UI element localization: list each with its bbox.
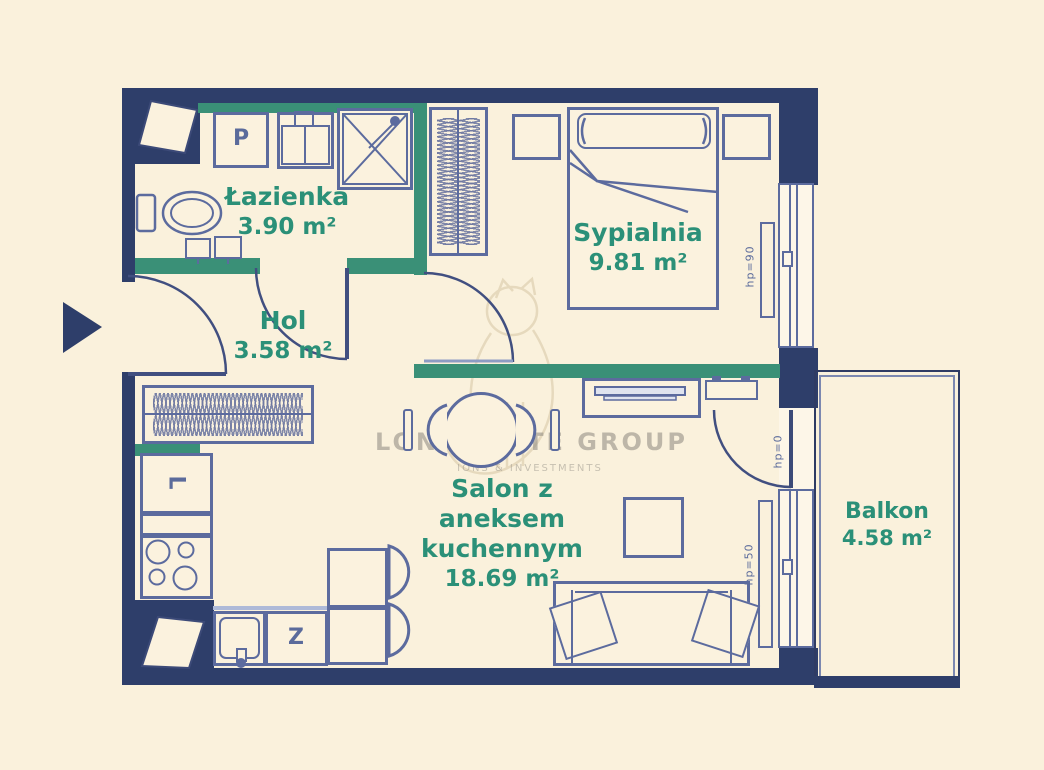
kitchen-table-lower: [327, 607, 388, 665]
bathroom-wall-bottom-left: [135, 258, 260, 274]
living-name-line2: aneksem: [392, 504, 612, 534]
hall-wardrobe: [142, 385, 314, 444]
counter-edge: [213, 606, 327, 610]
balcony-name: Balkon: [816, 498, 958, 525]
wall-bottom: [122, 668, 818, 685]
balcony-bottom-edge: [814, 676, 960, 688]
tv-cabinet: [582, 378, 701, 418]
room-label-hall: Hol 3.58 m²: [203, 306, 363, 366]
bedroom-area: 9.81 m²: [528, 248, 748, 278]
wall-right-middle: [779, 348, 818, 408]
kitchen-table-upper: [327, 548, 388, 608]
bedroom-door: [424, 273, 513, 362]
room-label-balcony: Balkon 4.58 m²: [816, 498, 958, 552]
balcony-door-label: hp=0: [772, 427, 785, 469]
coffee-table: [623, 497, 684, 558]
floor-plan: LON ESTATE GROUP IONS & INVESTMENTS: [0, 0, 1044, 770]
bedroom-window-label: hp=90: [744, 246, 757, 288]
living-area: 18.69 m²: [392, 564, 612, 594]
wall-right-lower: [779, 648, 818, 685]
kitchen-sink: [219, 617, 260, 659]
dishwasher-label: Z: [281, 625, 311, 650]
room-label-living: Salon z aneksem kuchennym 18.69 m²: [392, 474, 612, 594]
living-name-line1: Salon z: [392, 474, 612, 504]
kitchen-counter-cell: [140, 513, 213, 536]
bedroom-salon-wall: [414, 364, 780, 378]
living-room-window: [778, 489, 814, 648]
shaft-block-bottom: [122, 600, 214, 685]
living-window-label: hp=50: [743, 544, 756, 586]
wall-right-upper: [779, 88, 818, 185]
chair-left-back: [403, 409, 413, 451]
living-room-radiator: [758, 500, 773, 648]
entrance-arrow-icon: [63, 302, 102, 353]
hall-name: Hol: [203, 306, 363, 336]
shaft-block-top: [122, 88, 200, 164]
balcony-area: 4.58 m²: [816, 525, 958, 552]
living-name-line3: kuchennym: [392, 534, 612, 564]
fridge-label: L: [164, 468, 189, 498]
bathroom-area: 3.90 m²: [177, 212, 397, 242]
washer-label: P: [226, 126, 256, 151]
hall-area: 3.58 m²: [203, 336, 363, 366]
bathroom-wall-bottom-right: [347, 258, 427, 274]
stove: [140, 535, 213, 599]
room-label-bedroom: Sypialnia 9.81 m²: [528, 218, 748, 278]
bathroom-wall-right: [414, 103, 427, 275]
watermark-text: LON ESTATE GROUP: [375, 428, 685, 456]
wall-shelf: [705, 380, 758, 400]
room-label-bathroom: Łazienka 3.90 m²: [177, 182, 397, 242]
bedroom-wardrobe: [429, 107, 488, 256]
nightstand-right: [722, 114, 771, 160]
dining-table-round: [443, 392, 519, 468]
watermark-subtext: IONS & INVESTMENTS: [375, 463, 685, 474]
bedroom-name: Sypialnia: [528, 218, 748, 248]
nightstand-left: [512, 114, 561, 160]
washbasin: [277, 112, 334, 169]
bed-pillow: [577, 113, 711, 149]
chair-right-back: [550, 409, 560, 451]
wall-top: [122, 88, 818, 103]
bathroom-name: Łazienka: [177, 182, 397, 212]
shower: [337, 108, 413, 190]
bedroom-window: [778, 183, 814, 348]
bedroom-radiator: [760, 222, 775, 318]
